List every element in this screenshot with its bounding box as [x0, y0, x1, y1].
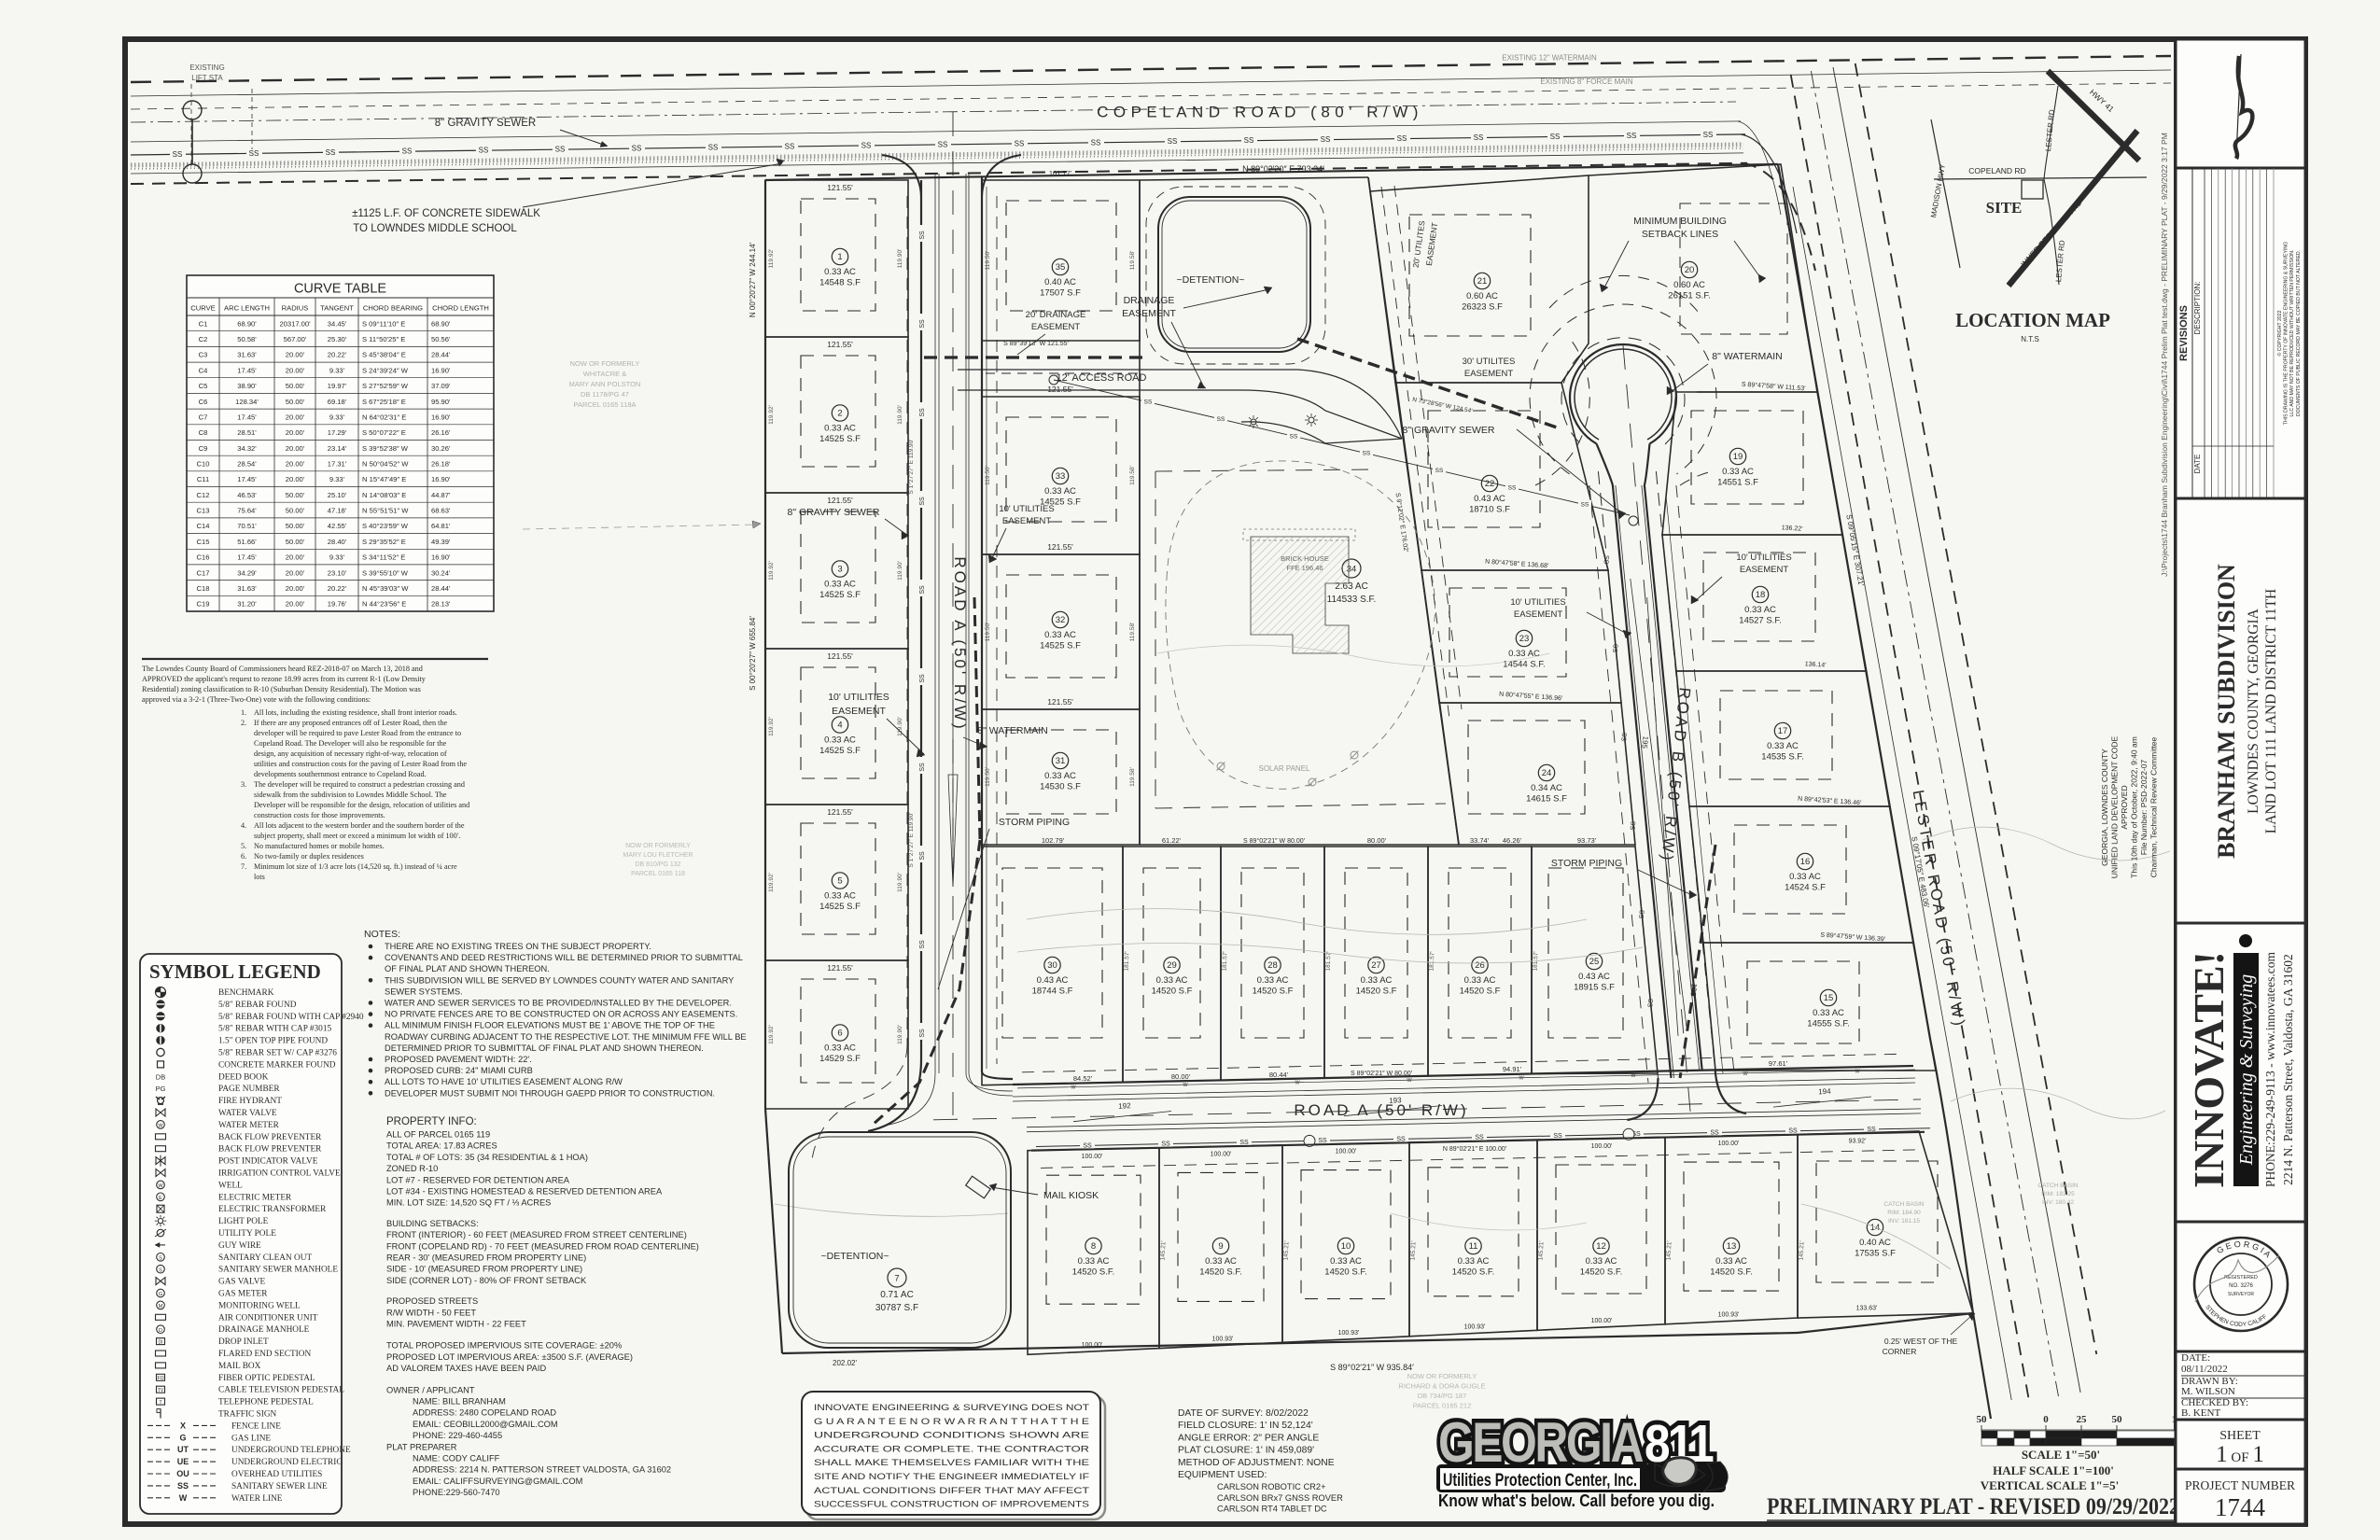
svg-text:R/W WIDTH - 50 FEET: R/W WIDTH - 50 FEET [386, 1308, 476, 1317]
svg-text:14: 14 [1870, 1223, 1881, 1233]
svg-text:SHEET: SHEET [2219, 1429, 2261, 1443]
svg-text:28.40': 28.40' [328, 538, 347, 546]
svg-text:0.33 AC: 0.33 AC [1722, 467, 1754, 477]
svg-text:25.30': 25.30' [328, 335, 347, 343]
svg-text:25.10': 25.10' [328, 491, 347, 499]
svg-text:FRONT (COPELAND RD) - 70 FEET: FRONT (COPELAND RD) - 70 FEET (MEASURED … [386, 1241, 699, 1251]
svg-text:OU: OU [176, 1469, 189, 1478]
svg-text:17.45': 17.45' [237, 366, 257, 374]
svg-text:COPELAND ROAD (80' R/W): COPELAND ROAD (80' R/W) [1097, 104, 1423, 121]
svg-text:26323 S.F: 26323 S.F [1462, 302, 1503, 313]
svg-text:28.44': 28.44' [431, 584, 451, 593]
svg-text:119.50': 119.50' [985, 251, 991, 271]
svg-text:~DETENTION~: ~DETENTION~ [1177, 274, 1245, 286]
svg-text:DESCRIPTION:: DESCRIPTION: [2193, 282, 2202, 335]
svg-text:SUCCESSFUL CONSTRUCTION OF: SUCCESSFUL CONSTRUCTION OF IMPROVEMENTS [814, 1500, 1089, 1510]
svg-text:10' UTILITIES: 10' UTILITIES [828, 692, 889, 703]
svg-text:NO PRIVATE FENCES ARE TO BE CO: NO PRIVATE FENCES ARE TO BE CONSTRUCTED … [385, 1010, 737, 1019]
svg-text:ACTUAL CONDITIONS DIFFER TH: ACTUAL CONDITIONS DIFFER THAT MAY AFFECT [814, 1486, 1089, 1496]
svg-text:±1125 L.F. OF CONCRETE SIDEWAL: ±1125 L.F. OF CONCRETE SIDEWALK [352, 208, 540, 219]
svg-text:BENCHMARK: BENCHMARK [218, 988, 274, 998]
svg-text:C6: C6 [199, 398, 208, 406]
svg-text:M. WILSON: M. WILSON [2181, 1386, 2235, 1397]
svg-text:14544 S.F.: 14544 S.F. [1503, 660, 1545, 670]
svg-text:14520 S.F: 14520 S.F [1152, 987, 1193, 997]
svg-text:128.34': 128.34' [235, 398, 259, 406]
svg-text:FIBER OPTIC PEDESTAL: FIBER OPTIC PEDESTAL [218, 1374, 315, 1383]
svg-text:NAME: CODY CALIFF: NAME: CODY CALIFF [413, 1454, 500, 1463]
svg-text:102.79': 102.79' [1042, 836, 1065, 845]
svg-text:WATER AND SEWER SERVICES TO BE: WATER AND SEWER SERVICES TO BE PROVIDED/… [385, 999, 732, 1008]
svg-text:19.97': 19.97' [328, 382, 347, 390]
svg-text:CARLSON ROBOTIC CR2+: CARLSON ROBOTIC CR2+ [1217, 1482, 1326, 1491]
svg-text:UNDERGROUND CONDITIONS SHOWN: UNDERGROUND CONDITIONS SHOWN ARE [814, 1431, 1089, 1441]
svg-text:SURVEYOR: SURVEYOR [2228, 1292, 2254, 1297]
svg-text:20.22': 20.22' [328, 584, 347, 593]
svg-text:THIS SUBDIVISION WILL BE SERVE: THIS SUBDIVISION WILL BE SERVED BY LOWND… [385, 975, 734, 985]
svg-text:3.: 3. [241, 780, 246, 789]
svg-text:S: S [159, 1255, 162, 1261]
svg-text:0: 0 [2043, 1414, 2049, 1425]
svg-text:0.33 AC: 0.33 AC [1156, 975, 1188, 986]
svg-text:0.40 AC: 0.40 AC [1044, 277, 1076, 287]
svg-text:7: 7 [894, 1274, 899, 1284]
svg-text:50.00': 50.00' [286, 522, 305, 530]
svg-text:PROJECT NUMBER: PROJECT NUMBER [2185, 1478, 2295, 1492]
svg-text:GAS LINE: GAS LINE [231, 1434, 271, 1443]
svg-text:CATCH BASIN: CATCH BASIN [2037, 1183, 2079, 1189]
svg-text:No two-family or duplex reside: No two-family or duplex residences [254, 852, 364, 861]
svg-text:31.20': 31.20' [237, 600, 257, 609]
svg-text:w: w [1742, 1071, 1748, 1077]
svg-text:0.71 AC: 0.71 AC [880, 1290, 914, 1300]
svg-text:This 10th day of October, 2022: This 10th day of October, 2022, 9:40 am [2130, 736, 2139, 878]
svg-text:0.33 AC: 0.33 AC [1458, 1256, 1490, 1267]
svg-text:145.21': 145.21' [1282, 1240, 1290, 1260]
svg-text:FIELD CLOSURE: 1' IN 52,124': FIELD CLOSURE: 1' IN 52,124' [1178, 1421, 1313, 1431]
svg-text:4: 4 [837, 721, 842, 731]
svg-text:Residential) zoning classifi: Residential) zoning classification to R-… [142, 685, 421, 693]
svg-text:J:\Projects\1744 Branham Subdi: J:\Projects\1744 Branham Subdivision Eng… [2160, 133, 2169, 577]
svg-text:8" GRAVITY SEWER: 8" GRAVITY SEWER [787, 507, 879, 518]
svg-text:WATER LINE: WATER LINE [231, 1494, 283, 1504]
svg-text:SS: SS [1321, 135, 1331, 144]
svg-text:0.43 AC: 0.43 AC [1578, 972, 1610, 982]
svg-text:SYMBOL LEGEND: SYMBOL LEGEND [149, 960, 321, 983]
svg-text:C13: C13 [197, 507, 210, 515]
svg-text:SS: SS [1363, 451, 1371, 457]
svg-text:0.33 AC: 0.33 AC [824, 891, 856, 902]
svg-text:TANGENT: TANGENT [320, 304, 354, 313]
svg-text:46.26': 46.26' [1503, 836, 1522, 845]
svg-text:UTILITY POLE: UTILITY POLE [218, 1229, 276, 1239]
svg-text:31.63': 31.63' [237, 351, 257, 359]
svg-text:lots: lots [254, 873, 265, 881]
svg-text:INNOVATE ENGINEERING & SURVEYI: INNOVATE ENGINEERING & SURVEYING DOES NO… [814, 1403, 1089, 1413]
svg-text:SS: SS [1710, 1129, 1719, 1136]
svg-text:14535 S.F.: 14535 S.F. [1761, 752, 1803, 763]
svg-text:EXISTING 12" WATERMAIN: EXISTING 12" WATERMAIN [1502, 54, 1597, 63]
svg-text:EMAIL: CEOBILL2000@GMAIL.COM: EMAIL: CEOBILL2000@GMAIL.COM [413, 1420, 558, 1429]
svg-text:W: W [179, 1493, 188, 1503]
svg-text:1: 1 [837, 252, 842, 262]
svg-text:14551 S.F: 14551 S.F [1717, 478, 1758, 488]
svg-text:SS: SS [632, 145, 642, 153]
svg-text:28.13': 28.13' [431, 600, 451, 609]
svg-text:subject property, shall meet o: subject property, shall meet or exceed a… [254, 832, 460, 840]
svg-text:developer will be required: developer will be required to pave Leste… [254, 729, 461, 737]
svg-text:14520 S.F.: 14520 S.F. [1580, 1267, 1622, 1278]
svg-text:0.60 AC: 0.60 AC [1673, 280, 1705, 290]
svg-text:SS: SS [919, 674, 926, 683]
svg-text:Copeland Road. The Develop: Copeland Road. The Developer will also b… [254, 739, 447, 748]
svg-text:OWNER / APPLICANT: OWNER / APPLICANT [386, 1385, 475, 1394]
svg-text:16.90': 16.90' [431, 553, 451, 562]
svg-text:C8: C8 [199, 428, 208, 437]
svg-text:EASEMENT: EASEMENT [1122, 308, 1176, 319]
svg-text:MIN. PAVEMENT WIDTH - 22 FEET: MIN. PAVEMENT WIDTH - 22 FEET [386, 1320, 526, 1329]
svg-text:20.00': 20.00' [286, 428, 305, 437]
svg-text:S 09°11′10″ E: S 09°11′10″ E [362, 319, 405, 328]
svg-text:0.60 AC: 0.60 AC [1466, 291, 1498, 301]
svg-text:SANITARY SEWER LINE: SANITARY SEWER LINE [231, 1482, 328, 1491]
svg-text:100.93': 100.93' [1212, 1336, 1234, 1342]
svg-text:APPROVED the applicant's re: APPROVED the applicant's request to rezo… [142, 675, 427, 683]
svg-text:S 24°39′24″ W: S 24°39′24″ W [362, 366, 409, 374]
svg-text:FENCE LINE: FENCE LINE [231, 1421, 281, 1431]
svg-text:SS: SS [1083, 1142, 1092, 1149]
svg-text:145.21': 145.21' [1537, 1240, 1545, 1260]
svg-text:DB 734/PG 187: DB 734/PG 187 [1418, 1392, 1467, 1400]
svg-text:21: 21 [1477, 276, 1488, 287]
svg-text:69.18': 69.18' [328, 398, 347, 406]
svg-text:construction costs for those i: construction costs for those improvement… [254, 811, 385, 819]
svg-text:119.92': 119.92' [768, 873, 775, 892]
svg-text:PROPOSED PAVEMENT WIDTH: 22'.: PROPOSED PAVEMENT WIDTH: 22'. [385, 1055, 532, 1064]
svg-text:utilities and construction: utilities and construction costs for the… [254, 760, 467, 768]
svg-text:19.76': 19.76' [328, 600, 347, 609]
svg-text:121.55': 121.55' [827, 183, 853, 192]
svg-text:GEORGIA, LOWNDES COUNTY: GEORGIA, LOWNDES COUNTY [2100, 749, 2109, 866]
svg-text:C9: C9 [199, 444, 208, 453]
svg-text:6: 6 [837, 1029, 842, 1039]
svg-text:T: T [159, 1400, 161, 1406]
svg-text:11: 11 [1469, 1241, 1478, 1252]
svg-text:26.16': 26.16' [431, 428, 451, 437]
svg-text:18744 S.F: 18744 S.F [1032, 987, 1073, 997]
svg-text:100.93': 100.93' [1338, 1330, 1360, 1337]
svg-text:18710 S.F: 18710 S.F [1469, 505, 1510, 515]
svg-text:C14: C14 [197, 522, 210, 530]
svg-text:119.90': 119.90' [897, 1025, 903, 1044]
svg-text:CARLSON RT4 TABLET DC: CARLSON RT4 TABLET DC [1217, 1504, 1327, 1513]
svg-text:DEVELOPER MUST SUBMIT NOI THRO: DEVELOPER MUST SUBMIT NOI THROUGH GAEPD … [385, 1088, 715, 1098]
svg-text:20.00': 20.00' [286, 460, 305, 469]
svg-text:93.73': 93.73' [1577, 836, 1597, 845]
svg-text:SS: SS [326, 148, 336, 157]
svg-text:BACK FLOW PREVENTER: BACK FLOW PREVENTER [218, 1145, 322, 1155]
svg-text:w: w [1182, 1082, 1188, 1088]
svg-text:SANITARY CLEAN OUT: SANITARY CLEAN OUT [218, 1253, 312, 1263]
svg-text:NOTES:: NOTES: [364, 929, 400, 940]
svg-text:14520 S.F.: 14520 S.F. [1710, 1267, 1752, 1278]
svg-text:23.10': 23.10' [328, 568, 347, 577]
svg-text:THERE ARE NO EXISTING TREES ON: THERE ARE NO EXISTING TREES ON THE SUBJE… [385, 942, 651, 951]
svg-text:PROPOSED STREETS: PROPOSED STREETS [386, 1296, 478, 1306]
svg-text:26: 26 [1475, 960, 1485, 971]
svg-text:7.: 7. [241, 862, 246, 871]
svg-text:SS: SS [177, 1481, 189, 1491]
svg-text:SS: SS [938, 140, 948, 148]
svg-text:CATCH BASIN: CATCH BASIN [1883, 1201, 1925, 1208]
svg-text:C19: C19 [197, 600, 210, 609]
svg-text:ZONED R-10: ZONED R-10 [386, 1164, 438, 1173]
svg-text:9.33': 9.33' [329, 553, 345, 562]
svg-text:SS: SS [1091, 138, 1101, 147]
svg-text:119.58': 119.58' [1129, 767, 1136, 787]
svg-text:0.33 AC: 0.33 AC [1044, 771, 1076, 781]
svg-text:ROADWAY CURBING ADJACENT TO TH: ROADWAY CURBING ADJACENT TO THE RESPECTI… [385, 1032, 747, 1042]
svg-text:100.00': 100.00' [1336, 1149, 1357, 1155]
svg-text:94.91': 94.91' [1503, 1065, 1522, 1073]
svg-text:STORM PIPING: STORM PIPING [1551, 858, 1622, 869]
svg-text:50.58': 50.58' [237, 335, 257, 343]
svg-text:SS: SS [919, 585, 926, 595]
svg-text:114533 S.F.: 114533 S.F. [1327, 595, 1377, 605]
svg-text:50.56': 50.56' [431, 335, 451, 343]
svg-text:DATE OF SURVEY: 8/02/2022: DATE OF SURVEY: 8/02/2022 [1178, 1408, 1309, 1419]
svg-text:100.93': 100.93' [1718, 1312, 1740, 1319]
svg-text:N 64°02′31″ E: N 64°02′31″ E [362, 413, 406, 421]
svg-text:SS: SS [1217, 416, 1225, 423]
svg-text:B. KENT: B. KENT [2181, 1407, 2220, 1419]
svg-text:developments southernmost entr: developments southernmost entrance to Co… [254, 770, 427, 778]
svg-text:37.09': 37.09' [431, 382, 451, 390]
svg-text:50.00': 50.00' [286, 398, 305, 406]
svg-text:NOW OR FORMERLY: NOW OR FORMERLY [625, 843, 691, 849]
svg-text:9.33': 9.33' [329, 475, 345, 483]
svg-text:DATE:: DATE: [2181, 1352, 2210, 1364]
svg-text:FIRE HYDRANT: FIRE HYDRANT [218, 1097, 282, 1106]
svg-text:SS: SS [919, 497, 926, 506]
svg-text:14525 S.F: 14525 S.F [819, 746, 861, 756]
svg-text:19: 19 [1733, 452, 1743, 462]
svg-text:68.90': 68.90' [237, 319, 257, 328]
svg-text:SCALE 1"=50': SCALE 1"=50' [2022, 1448, 2100, 1462]
svg-text:119.92': 119.92' [768, 249, 775, 269]
svg-text:100.00': 100.00' [1211, 1151, 1232, 1157]
svg-text:TV: TV [158, 1388, 164, 1393]
svg-text:G: G [159, 1292, 162, 1297]
svg-text:LOT #34 - EXISTING HOMESTEAD &: LOT #34 - EXISTING HOMESTEAD & RESERVED … [386, 1187, 663, 1197]
svg-text:50.00': 50.00' [286, 538, 305, 546]
svg-text:M: M [159, 1304, 163, 1309]
svg-text:4.: 4. [241, 821, 246, 830]
svg-text:47.18': 47.18' [328, 507, 347, 515]
svg-text:w: w [1518, 1075, 1524, 1082]
svg-text:119.58': 119.58' [1129, 623, 1136, 642]
svg-text:20317.00': 20317.00' [279, 319, 311, 328]
svg-text:80.44': 80.44' [1269, 1071, 1289, 1079]
svg-text:0.34 AC: 0.34 AC [1531, 783, 1562, 793]
svg-text:0.33 AC: 0.33 AC [824, 580, 856, 590]
svg-text:195: 195 [1640, 735, 1649, 749]
svg-text:18915 S.F: 18915 S.F [1574, 983, 1615, 993]
svg-text:119.92': 119.92' [768, 561, 775, 581]
svg-text:N 45°39′03″ W: N 45°39′03″ W [362, 584, 409, 593]
svg-text:G: G [179, 1433, 186, 1442]
svg-text:SS: SS [1581, 502, 1589, 509]
svg-text:14615 S.F: 14615 S.F [1526, 794, 1567, 805]
svg-text:20.00': 20.00' [286, 568, 305, 577]
svg-text:PRELIMINARY PLAT - REVISED 09/: PRELIMINARY PLAT - REVISED 09/29/2022 [1767, 1494, 2179, 1519]
svg-text:INNOVATE!: INNOVATE! [2185, 951, 2233, 1188]
svg-text:TO LOWNDES MIDDLE SCHOOL: TO LOWNDES MIDDLE SCHOOL [353, 223, 517, 234]
svg-text:REGISTERED: REGISTERED [2224, 1275, 2258, 1281]
svg-text:DROP INLET: DROP INLET [218, 1337, 269, 1347]
svg-text:17.29': 17.29' [328, 428, 347, 437]
svg-text:SS: SS [1474, 133, 1484, 142]
svg-text:METHOD OF ADJUSTMENT: NONE: METHOD OF ADJUSTMENT: NONE [1178, 1458, 1335, 1468]
svg-text:SS: SS [919, 408, 926, 417]
svg-text:567.00': 567.00' [284, 335, 307, 343]
svg-text:SS: SS [479, 147, 489, 155]
svg-text:REVISIONS: REVISIONS [2178, 305, 2190, 361]
svg-text:14520 S.F: 14520 S.F [1460, 987, 1501, 997]
svg-text:13: 13 [1727, 1241, 1737, 1252]
svg-text:100.93': 100.93' [1464, 1323, 1486, 1330]
svg-text:14525 S.F: 14525 S.F [819, 590, 861, 600]
svg-text:181.57': 181.57' [1123, 951, 1130, 971]
svg-text:C11: C11 [197, 475, 209, 483]
svg-text:SS: SS [1475, 1135, 1484, 1141]
svg-text:TOTAL # OF LOTS: 35 (34 RESIDE: TOTAL # OF LOTS: 35 (34 RESIDENTIAL & 1 … [386, 1153, 588, 1162]
svg-text:20.00': 20.00' [286, 553, 305, 562]
svg-text:EMAIL: CALIFFSURVEYING@GMAIL.C: EMAIL: CALIFFSURVEYING@GMAIL.COM [413, 1477, 582, 1486]
svg-text:EASEMENT: EASEMENT [1031, 322, 1080, 332]
svg-text:PLAT PREPARER: PLAT PREPARER [386, 1442, 457, 1451]
svg-text:PROPOSED CURB: 24" MIAMI CURB: PROPOSED CURB: 24" MIAMI CURB [385, 1066, 533, 1075]
svg-text:Chairman, Technical Review Com: Chairman, Technical Review Committee [2149, 736, 2159, 877]
svg-text:File Number: PSD-2022-07: File Number: PSD-2022-07 [2139, 759, 2149, 855]
svg-text:192: 192 [1118, 1101, 1131, 1111]
svg-text:S: S [159, 1267, 162, 1273]
svg-text:SANITARY SEWER MANHOLE: SANITARY SEWER MANHOLE [218, 1266, 338, 1275]
svg-text:ALL MINIMUM FINISH FLOOR ELEVA: ALL MINIMUM FINISH FLOOR ELEVATIONS MUST… [385, 1021, 715, 1030]
svg-text:approved via a 3-2-1 (Three-Tw: approved via a 3-2-1 (Three-Two-One) vot… [142, 695, 371, 704]
svg-text:20.00': 20.00' [286, 584, 305, 593]
svg-text:30' UTILITES: 30' UTILITES [1463, 357, 1516, 367]
svg-text:SS: SS [555, 146, 566, 154]
svg-text:DATE: DATE [2193, 455, 2202, 474]
svg-text:COPELAND RD: COPELAND RD [1968, 166, 2025, 175]
svg-text:S 50°07′22″ E: S 50°07′22″ E [362, 428, 406, 437]
svg-text:OF FINAL PLAT AND SHOWN THEREO: OF FINAL PLAT AND SHOWN THEREON. [385, 964, 550, 973]
svg-text:DOCUMENTS OF PUBLIC RECORD MAY: DOCUMENTS OF PUBLIC RECORD MAY BE COPIED… [2296, 250, 2302, 416]
svg-text:UNDERGROUND TELEPHONE: UNDERGROUND TELEPHONE [231, 1446, 351, 1455]
svg-text:20.00': 20.00' [286, 413, 305, 421]
svg-text:1.: 1. [241, 708, 246, 717]
svg-text:SS: SS [1396, 1136, 1406, 1142]
svg-text:C16: C16 [197, 553, 210, 562]
svg-text:10' UTILITIES: 10' UTILITIES [1736, 553, 1791, 563]
svg-text:SS: SS [402, 147, 413, 156]
svg-text:WHITACRE &: WHITACRE & [583, 370, 627, 378]
svg-text:8" WATERMAIN: 8" WATERMAIN [977, 725, 1047, 736]
svg-text:46.53': 46.53' [237, 491, 257, 499]
svg-text:100.00': 100.00' [1591, 1143, 1613, 1150]
svg-text:0.33 AC: 0.33 AC [824, 424, 856, 434]
svg-text:SS: SS [1244, 136, 1254, 145]
svg-text:FLARED END SECTION: FLARED END SECTION [218, 1350, 311, 1359]
svg-text:145.21': 145.21' [1159, 1240, 1167, 1260]
svg-text:14527 S.F.: 14527 S.F. [1739, 616, 1781, 626]
svg-text:S 89°02′21″ W 935.84′: S 89°02′21″ W 935.84′ [1330, 1363, 1414, 1372]
svg-text:100.00': 100.00' [1082, 1154, 1103, 1160]
svg-text:SS: SS [1144, 399, 1153, 406]
svg-text:100.00': 100.00' [1718, 1141, 1740, 1147]
svg-text:PAGE NUMBER: PAGE NUMBER [218, 1085, 280, 1094]
svg-text:SEWER SYSTEMS.: SEWER SYSTEMS. [385, 987, 463, 996]
svg-text:SS: SS [919, 763, 926, 772]
svg-text:PHONE:229-560-7470: PHONE:229-560-7470 [413, 1488, 500, 1497]
svg-text:50.00': 50.00' [286, 382, 305, 390]
svg-text:SIDE - 10' (MEASURED FROM PROP: SIDE - 10' (MEASURED FROM PROPERTY LINE) [386, 1265, 582, 1274]
svg-text:202.02': 202.02' [833, 1359, 857, 1367]
svg-text:16.90': 16.90' [431, 413, 451, 421]
svg-text:SS: SS [1318, 1138, 1327, 1144]
svg-text:3: 3 [837, 565, 842, 575]
svg-text:TRAFFIC SIGN: TRAFFIC SIGN [218, 1410, 277, 1420]
svg-text:w: w [1294, 1080, 1300, 1086]
svg-text:VERTICAL SCALE 1"=5': VERTICAL SCALE 1"=5' [1981, 1478, 2120, 1492]
svg-text:25: 25 [1589, 957, 1600, 967]
svg-text:50: 50 [1977, 1414, 1988, 1425]
svg-text:15: 15 [1824, 993, 1834, 1003]
svg-text:121.55': 121.55' [827, 807, 853, 817]
svg-text:No manufactured homes or mobil: No manufactured homes or mobile homes. [254, 842, 385, 850]
svg-text:The Lowndes County Board o: The Lowndes County Board of Commissioner… [142, 665, 423, 673]
svg-text:C5: C5 [199, 382, 208, 390]
svg-text:CHORD BEARING: CHORD BEARING [363, 304, 423, 313]
svg-text:N 89°02′21″ E 100.00′: N 89°02′21″ E 100.00′ [1443, 1145, 1507, 1153]
svg-text:TELEPHONE PEDESTAL: TELEPHONE PEDESTAL [218, 1398, 314, 1407]
svg-text:CURVE TABLE: CURVE TABLE [294, 282, 386, 297]
svg-text:SITE AND NOTIFY THE ENGINE: SITE AND NOTIFY THE ENGINEER IMMEDIATELY… [814, 1472, 1089, 1482]
svg-text:28.54': 28.54' [237, 460, 257, 469]
svg-text:5: 5 [837, 876, 842, 887]
svg-text:STORM PIPING: STORM PIPING [999, 817, 1070, 828]
svg-text:121.55': 121.55' [827, 963, 853, 973]
svg-text:SETBACK LINES: SETBACK LINES [1642, 229, 1718, 240]
svg-text:0.33 AC: 0.33 AC [1044, 486, 1076, 497]
svg-text:51.66': 51.66' [237, 538, 257, 546]
svg-text:INV: 180.42: INV: 180.42 [2042, 1199, 2074, 1206]
svg-text:181.57': 181.57' [1428, 951, 1435, 971]
svg-text:W: W [158, 1183, 163, 1189]
svg-text:SS: SS [1015, 139, 1025, 147]
svg-text:20: 20 [1685, 265, 1695, 275]
svg-text:100.00': 100.00' [1591, 1318, 1613, 1324]
svg-text:AIR CONDITIONER UNIT: AIR CONDITIONER UNIT [218, 1313, 318, 1323]
svg-text:0.33 AC: 0.33 AC [1078, 1256, 1110, 1267]
svg-text:SITE: SITE [1986, 199, 2023, 217]
svg-text:119.58': 119.58' [1129, 251, 1136, 271]
svg-text:~DETENTION~: ~DETENTION~ [821, 1251, 889, 1262]
svg-text:RADIUS: RADIUS [282, 304, 309, 313]
svg-text:NO. 3276: NO. 3276 [2229, 1283, 2253, 1289]
svg-text:5.: 5. [241, 842, 246, 850]
